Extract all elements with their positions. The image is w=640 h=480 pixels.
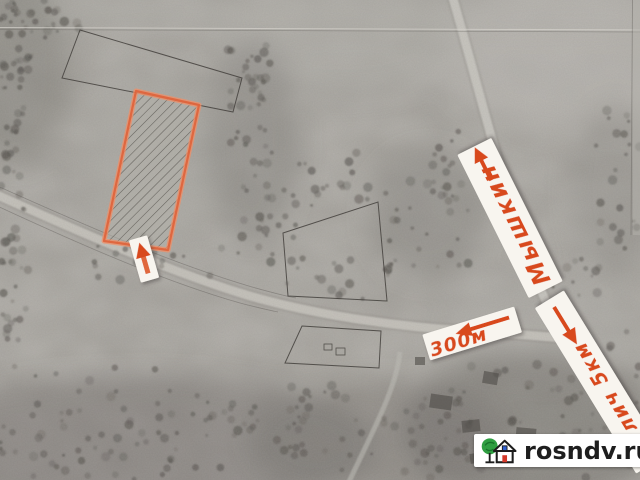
watermark: rosndv.ru xyxy=(474,434,640,467)
watermark-site-text: rosndv.ru xyxy=(524,439,640,463)
door-icon xyxy=(502,455,507,462)
watermark-logo xyxy=(480,436,520,466)
aerial-photo: Мышкин 300м Углич 5км xyxy=(0,0,640,480)
window-icon xyxy=(502,445,507,450)
listing-photo: Мышкин 300м Углич 5км rosndv.ru xyxy=(0,0,640,480)
